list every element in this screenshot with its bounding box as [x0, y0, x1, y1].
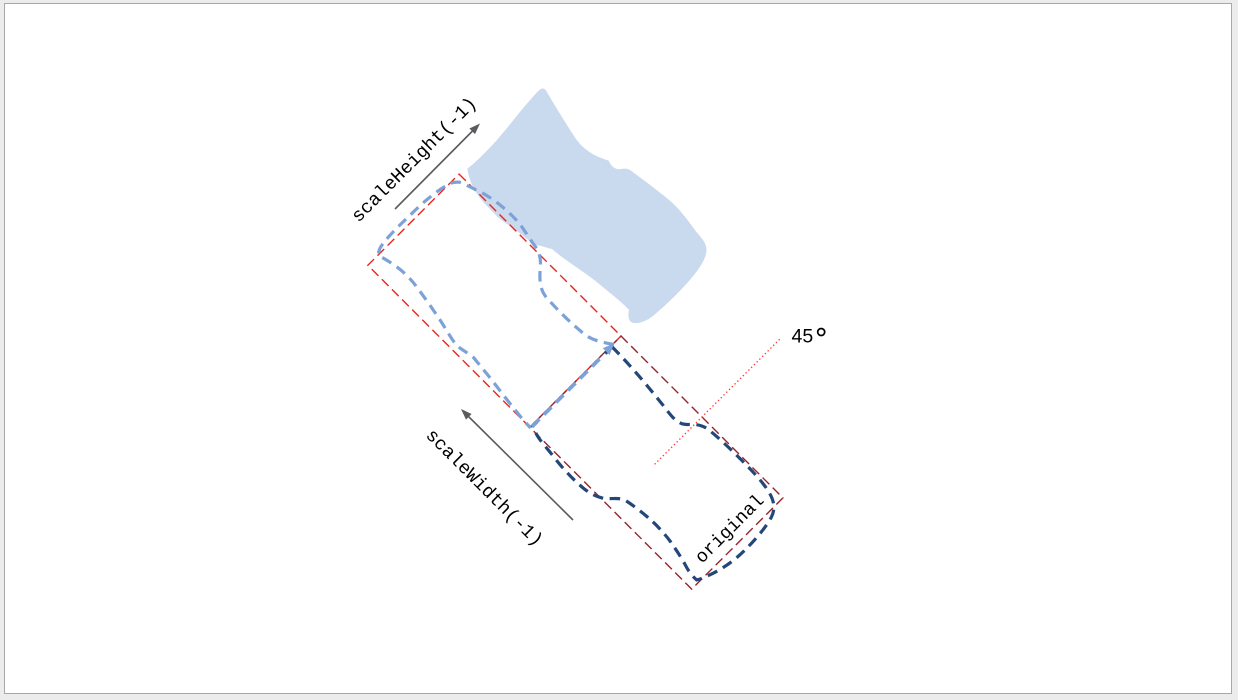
svg-text:45: 45	[792, 326, 814, 348]
